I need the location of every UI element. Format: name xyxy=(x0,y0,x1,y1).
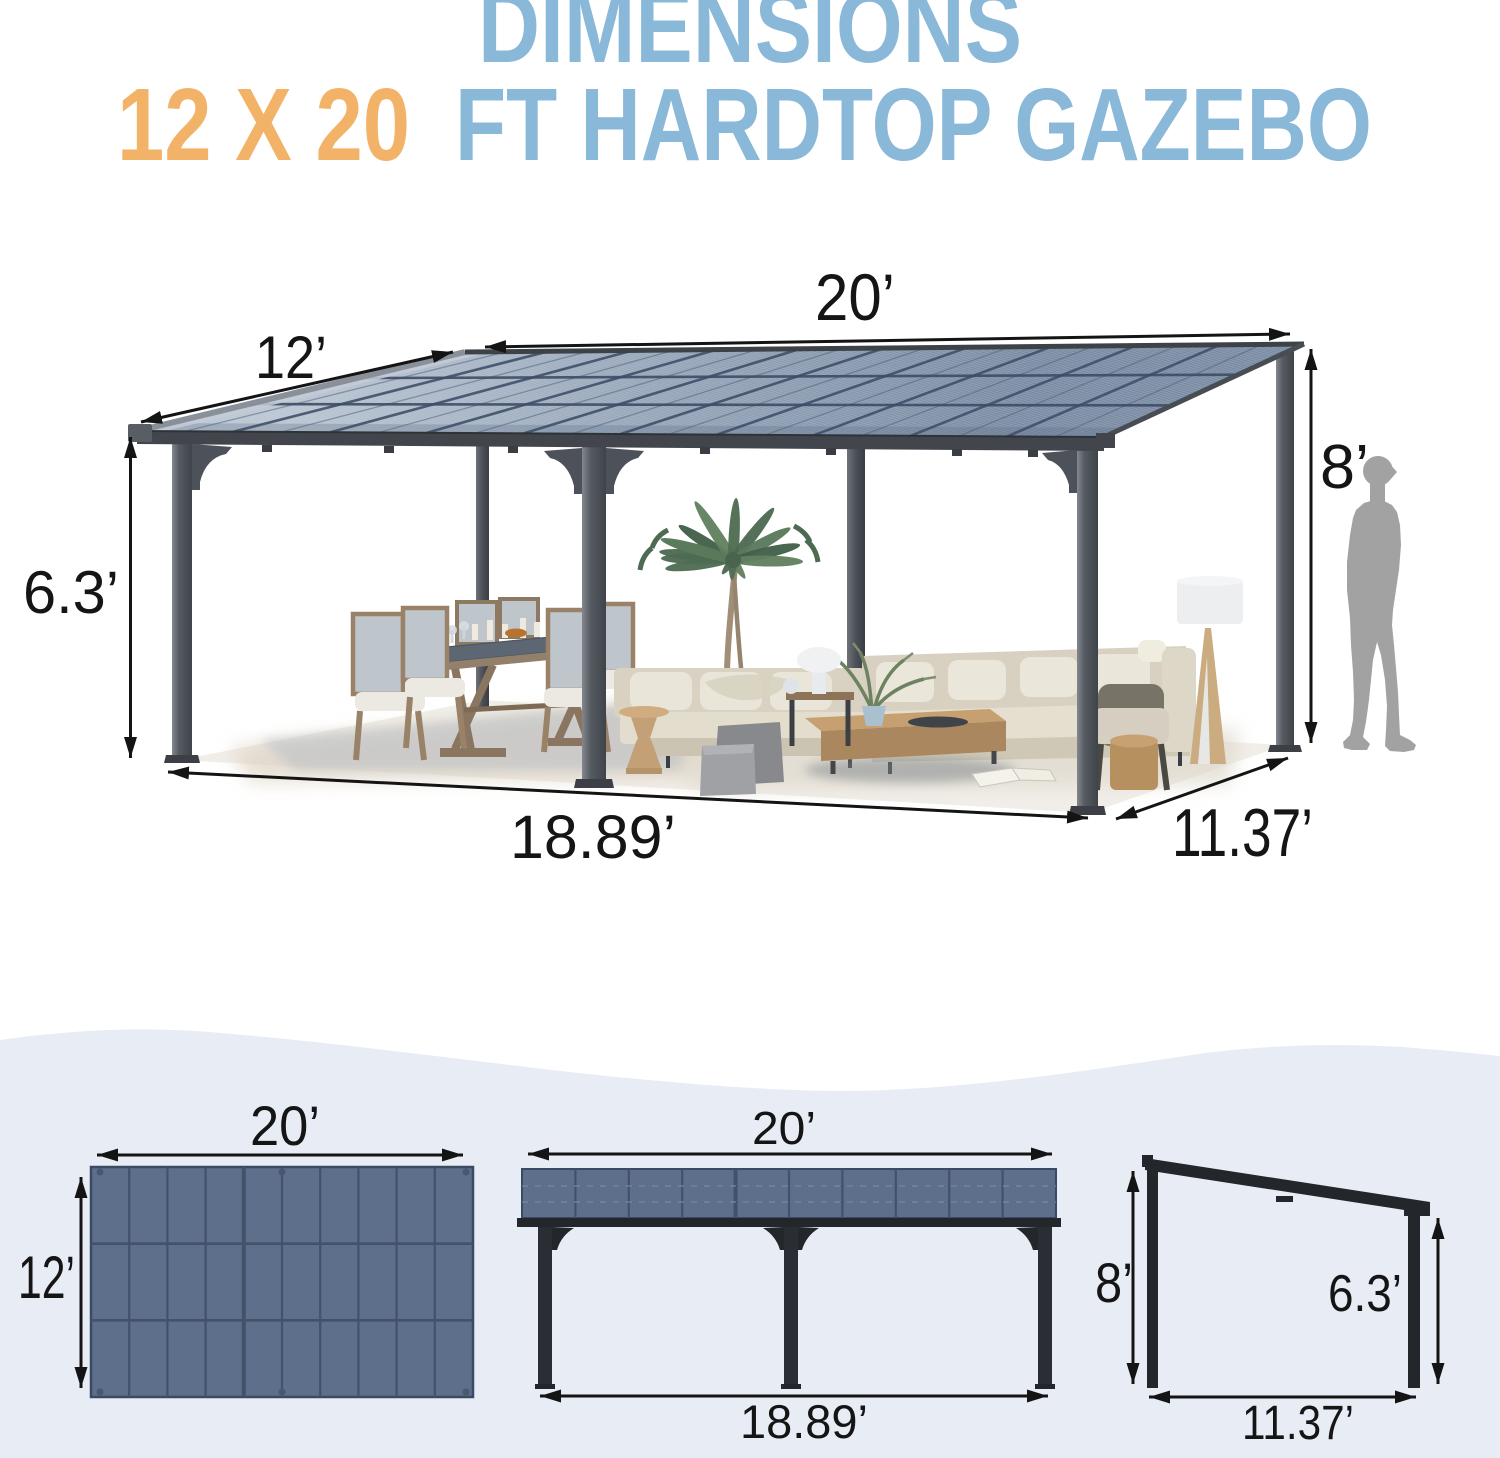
svg-text:8’: 8’ xyxy=(1095,1251,1133,1314)
svg-text:20’: 20’ xyxy=(250,1094,320,1157)
svg-text:18.89’: 18.89’ xyxy=(510,803,676,871)
svg-text:12’: 12’ xyxy=(255,324,327,391)
svg-text:6.3’: 6.3’ xyxy=(23,559,119,626)
svg-text:FT HARDTOP GAZEBO: FT HARDTOP GAZEBO xyxy=(455,67,1372,182)
svg-text:20’: 20’ xyxy=(815,260,895,334)
svg-text:20’: 20’ xyxy=(752,1102,816,1154)
svg-text:8’: 8’ xyxy=(1320,433,1369,502)
svg-text:12’: 12’ xyxy=(18,1244,75,1311)
svg-text:11.37’: 11.37’ xyxy=(1242,1397,1354,1450)
svg-text:6.3’: 6.3’ xyxy=(1328,1265,1402,1323)
svg-text:11.37’: 11.37’ xyxy=(1172,795,1313,871)
svg-text:12 X 20: 12 X 20 xyxy=(117,67,410,182)
svg-text:18.89’: 18.89’ xyxy=(740,1395,868,1448)
